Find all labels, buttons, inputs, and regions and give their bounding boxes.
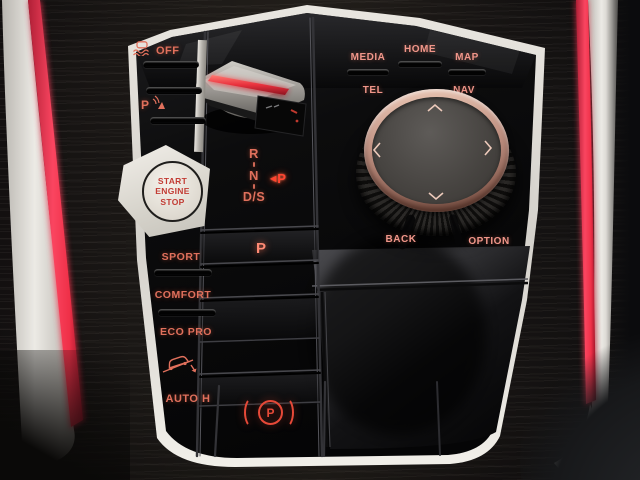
home-label: HOME	[394, 44, 446, 55]
map-button[interactable]: MAP	[444, 52, 490, 80]
chevron-down-icon[interactable]	[427, 188, 445, 206]
home-rocker[interactable]	[398, 61, 442, 67]
chevron-up-icon[interactable]	[426, 100, 444, 118]
park-assist-button[interactable]: P	[141, 96, 191, 114]
traction-control-off-icon	[132, 41, 152, 61]
gate-tick	[253, 162, 255, 167]
sport-comfort-rocker[interactable]	[154, 269, 212, 276]
park-assist-rocker[interactable]	[150, 117, 206, 124]
map-rocker[interactable]	[448, 69, 486, 75]
drive-mode-ecopro-button[interactable]: ECO PRO	[153, 326, 219, 338]
chevron-left-icon[interactable]	[372, 141, 382, 164]
gear-position-indicator: P	[250, 240, 272, 257]
auto-hold-button[interactable]: AUTO H	[160, 393, 216, 405]
start-label-line1: START	[158, 176, 187, 187]
hill-descent-button[interactable]	[160, 353, 200, 375]
dsc-off-label: OFF	[156, 45, 180, 57]
park-release-label: P	[277, 171, 286, 186]
center-console-photo: OFF P START ENGINE STOP SPORT COMFORT EC…	[0, 0, 640, 480]
home-button[interactable]: HOME	[394, 44, 446, 72]
media-rocker[interactable]	[347, 69, 389, 75]
hill-descent-control-icon	[160, 362, 200, 379]
option-button[interactable]: OPTION	[462, 236, 516, 247]
media-label: MEDIA	[340, 52, 396, 63]
bottom-left-shadow	[0, 350, 130, 480]
left-arrow-icon: ◀	[270, 174, 276, 183]
map-label: MAP	[444, 52, 490, 63]
gate-tick	[253, 184, 255, 189]
parking-brake-label: P	[266, 406, 274, 420]
parking-brake-circle: P	[258, 400, 283, 425]
drive-mode-sport-button[interactable]: SPORT	[150, 251, 212, 263]
chevron-right-icon[interactable]	[483, 139, 493, 162]
comfort-ecopro-rocker[interactable]	[158, 309, 216, 316]
dsc-off-button[interactable]: OFF	[132, 42, 202, 60]
park-assist-sensor-icon	[152, 95, 166, 115]
back-button[interactable]: BACK	[380, 234, 422, 245]
gear-position-n: N	[249, 168, 259, 183]
start-label-line2: ENGINE	[155, 186, 189, 197]
media-button[interactable]: MEDIA	[340, 52, 396, 80]
storage-lid-panel	[310, 235, 530, 449]
gear-position-ds: D/S	[243, 190, 265, 204]
dsc-off-rocker[interactable]	[143, 61, 199, 68]
parking-brake-button[interactable]: P	[242, 392, 296, 430]
drive-mode-comfort-button[interactable]: COMFORT	[150, 289, 216, 301]
spare-rocker[interactable]	[146, 87, 202, 94]
start-engine-stop-button[interactable]: START ENGINE STOP	[142, 161, 203, 222]
tel-button[interactable]: TEL	[352, 85, 394, 96]
start-label-line3: STOP	[160, 197, 184, 208]
park-assist-label: P	[141, 98, 150, 112]
gear-position-r: R	[249, 146, 259, 161]
park-release-button[interactable]: ◀ P	[262, 169, 294, 187]
